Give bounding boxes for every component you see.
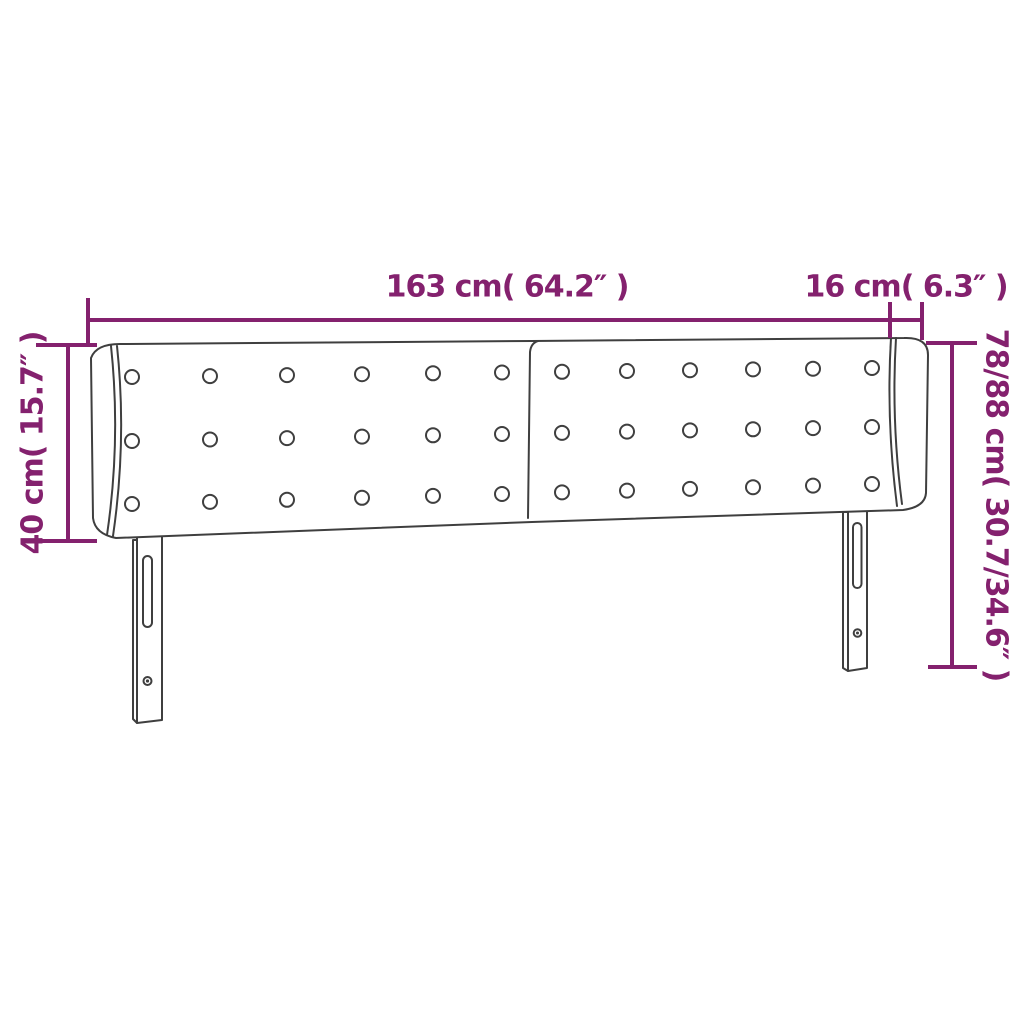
tufting-button-r2-c6 — [495, 427, 509, 441]
tufting-button-r3-c10 — [746, 480, 760, 494]
label-height-total: 78/88 cm( 30.7/34.6″ ) — [979, 329, 1014, 682]
tufting-button-r2-c11 — [806, 421, 820, 435]
tufting-button-r3-c7 — [555, 485, 569, 499]
tufting-button-r2-c5 — [426, 428, 440, 442]
tufting-button-r3-c8 — [620, 484, 634, 498]
tufting-button-r2-c7 — [555, 426, 569, 440]
tufting-button-r1-c7 — [555, 365, 569, 379]
label-width-main: 163 cm( 64.2″ ) — [386, 270, 629, 305]
tufting-button-r1-c2 — [203, 369, 217, 383]
tufting-button-r3-c6 — [495, 487, 509, 501]
tufting-button-r2-c4 — [355, 430, 369, 444]
tufting-button-r1-c1 — [125, 370, 139, 384]
tufting-button-r2-c10 — [746, 422, 760, 436]
tufting-button-r3-c9 — [683, 482, 697, 496]
tufting-button-r1-c3 — [280, 368, 294, 382]
headboard — [91, 338, 928, 538]
tufting-button-r1-c10 — [746, 362, 760, 376]
tufting-button-r3-c2 — [203, 495, 217, 509]
tufting-button-r1-c8 — [620, 364, 634, 378]
tufting-button-r1-c5 — [426, 366, 440, 380]
tufting-button-r3-c11 — [806, 479, 820, 493]
tufting-button-r2-c9 — [683, 423, 697, 437]
headboard-dimension-diagram: 163 cm( 64.2″ ) 16 cm( 6.3″ ) 40 cm( 15.… — [0, 0, 1024, 1024]
tufting-button-r2-c8 — [620, 425, 634, 439]
tufting-button-r3-c5 — [426, 489, 440, 503]
label-height-upholstered: 40 cm( 15.7″ ) — [16, 332, 51, 555]
tufting-button-r2-c2 — [203, 433, 217, 447]
tufting-button-r1-c9 — [683, 363, 697, 377]
dimension-width — [88, 298, 922, 344]
right-leg-front-face — [848, 507, 867, 671]
label-width-wing: 16 cm( 6.3″ ) — [804, 270, 1007, 305]
tufting-button-r2-c1 — [125, 434, 139, 448]
tufting-button-r3-c3 — [280, 493, 294, 507]
tufting-button-r2-c12 — [865, 420, 879, 434]
tufting-button-r3-c12 — [865, 477, 879, 491]
tufting-button-r1-c12 — [865, 361, 879, 375]
right-leg-screw-dot — [856, 632, 859, 635]
left-leg-screw-dot — [146, 679, 149, 682]
tufting-button-r1-c4 — [355, 367, 369, 381]
diagram-canvas — [0, 0, 1024, 1024]
tufting-button-r3-c4 — [355, 491, 369, 505]
tufting-button-r2-c3 — [280, 431, 294, 445]
left-leg-front-face — [137, 535, 162, 723]
left-leg — [133, 535, 162, 723]
right-leg — [843, 507, 867, 671]
dimension-height-total — [926, 343, 977, 667]
tufting-button-r3-c1 — [125, 497, 139, 511]
tufting-button-r1-c11 — [806, 362, 820, 376]
tufting-button-r1-c6 — [495, 366, 509, 380]
